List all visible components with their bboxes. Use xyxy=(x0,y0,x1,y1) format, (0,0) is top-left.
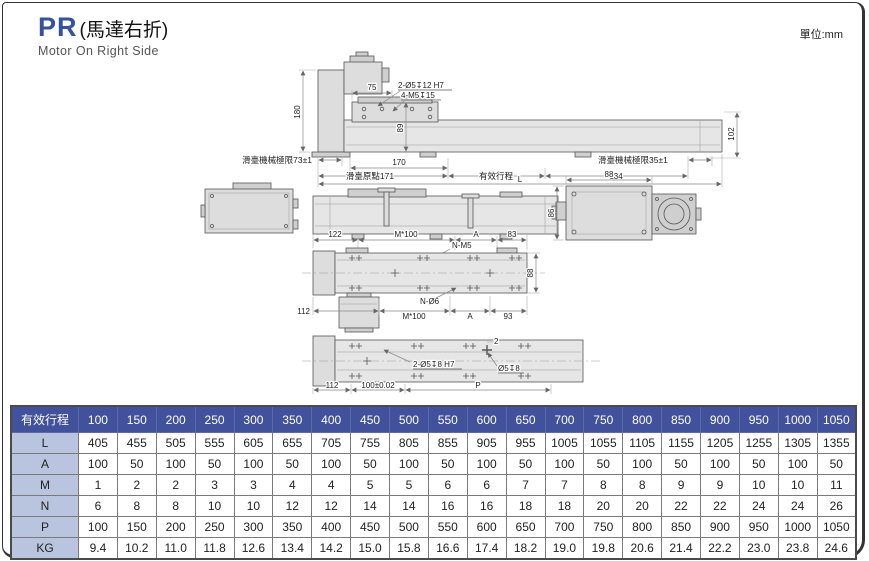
value-cell: 855 xyxy=(428,433,467,454)
value-cell: 800 xyxy=(623,517,662,538)
value-cell: 6 xyxy=(428,475,467,496)
value-cell: 50 xyxy=(506,454,545,475)
value-cell: 18 xyxy=(545,496,584,517)
value-cell: 5 xyxy=(390,475,429,496)
stroke-table: 有效行程 10015020025030035040045050055060065… xyxy=(10,405,857,560)
value-cell: 7 xyxy=(506,475,545,496)
dim-m100-top: M*100 xyxy=(394,230,418,239)
value-cell: 21.4 xyxy=(662,538,701,560)
value-cell: 16.6 xyxy=(428,538,467,560)
value-cell: 22 xyxy=(662,496,701,517)
label-n-o6: N-Ø6 xyxy=(420,297,440,306)
value-cell: 955 xyxy=(506,433,545,454)
value-cell: 550 xyxy=(428,517,467,538)
value-cell: 4 xyxy=(273,475,312,496)
value-cell: 11.0 xyxy=(156,538,195,560)
value-cell: 6 xyxy=(467,475,506,496)
value-cell: 7 xyxy=(545,475,584,496)
dim-a-bot: A xyxy=(467,312,473,321)
bottom-view: 2 2-Ø5↧8 H7 Ø5↧8 112 100±0.02 P xyxy=(302,336,600,394)
value-cell: 50 xyxy=(117,454,156,475)
value-cell: 500 xyxy=(390,517,429,538)
value-cell: 13.4 xyxy=(273,538,312,560)
value-cell: 5 xyxy=(351,475,390,496)
value-cell: 50 xyxy=(428,454,467,475)
stroke-header-cell: 1050 xyxy=(817,406,856,433)
value-cell: 100 xyxy=(79,517,118,538)
row-label-cell: L xyxy=(11,433,79,454)
table-row: N6881010121214141616181820202222242426 xyxy=(11,496,856,517)
stroke-header-cell: 250 xyxy=(195,406,234,433)
table-row: M12233445566778899101011 xyxy=(11,475,856,496)
value-cell: 22.2 xyxy=(701,538,740,560)
value-cell: 3 xyxy=(234,475,273,496)
value-cell: 605 xyxy=(234,433,273,454)
value-cell: 2 xyxy=(117,475,156,496)
value-cell: 4 xyxy=(312,475,351,496)
value-cell: 705 xyxy=(312,433,351,454)
value-cell: 2 xyxy=(156,475,195,496)
value-cell: 650 xyxy=(506,517,545,538)
value-cell: 24.6 xyxy=(817,538,856,560)
value-cell: 805 xyxy=(390,433,429,454)
dim-plan-88: 88 xyxy=(526,268,535,277)
stroke-header-cell: 500 xyxy=(390,406,429,433)
value-cell: 1005 xyxy=(545,433,584,454)
value-cell: 100 xyxy=(79,454,118,475)
value-cell: 250 xyxy=(195,517,234,538)
plan-view: 122 M*100 A 83 N-M5 xyxy=(297,230,545,332)
stroke-header-cell: 400 xyxy=(312,406,351,433)
value-cell: 1155 xyxy=(662,433,701,454)
value-cell: 3 xyxy=(195,475,234,496)
value-cell: 850 xyxy=(662,517,701,538)
value-cell: 1355 xyxy=(817,433,856,454)
value-cell: 19.0 xyxy=(545,538,584,560)
dim-a-top: A xyxy=(473,230,479,239)
dim-end-86: 86 xyxy=(547,208,556,217)
value-cell: 24 xyxy=(778,496,817,517)
stroke-header-cell: 800 xyxy=(623,406,662,433)
series-code: PR xyxy=(38,12,78,42)
dim-83: 83 xyxy=(508,230,517,239)
technical-drawings: 180 75 2-Ø5↧12 H7 4-M5↧15 89 102 滑臺機械極限 xyxy=(0,50,869,405)
value-cell: 9 xyxy=(662,475,701,496)
stroke-header-cell: 950 xyxy=(739,406,778,433)
stroke-header-cell: 750 xyxy=(584,406,623,433)
value-cell: 50 xyxy=(351,454,390,475)
value-cell: 50 xyxy=(273,454,312,475)
value-cell: 200 xyxy=(156,517,195,538)
stroke-header-cell: 550 xyxy=(428,406,467,433)
value-cell: 400 xyxy=(312,517,351,538)
value-cell: 700 xyxy=(545,517,584,538)
dim-112-plan: 112 xyxy=(297,307,310,316)
value-cell: 10 xyxy=(778,475,817,496)
value-cell: 1105 xyxy=(623,433,662,454)
value-cell: 555 xyxy=(195,433,234,454)
value-cell: 100 xyxy=(623,454,662,475)
value-cell: 1055 xyxy=(584,433,623,454)
unit-label: 單位:mm xyxy=(800,26,843,42)
value-cell: 150 xyxy=(117,517,156,538)
value-cell: 26 xyxy=(817,496,856,517)
value-cell: 18 xyxy=(506,496,545,517)
value-cell: 405 xyxy=(79,433,118,454)
value-cell: 17.4 xyxy=(467,538,506,560)
value-cell: 10 xyxy=(739,475,778,496)
value-cell: 18.2 xyxy=(506,538,545,560)
value-cell: 1205 xyxy=(701,433,740,454)
motor-top-view xyxy=(201,183,298,233)
value-cell: 100 xyxy=(156,454,195,475)
value-cell: 8 xyxy=(156,496,195,517)
value-cell: 450 xyxy=(351,517,390,538)
label-n-m5: N-M5 xyxy=(452,241,472,250)
value-cell: 8 xyxy=(623,475,662,496)
dim-m100-bot: M*100 xyxy=(402,312,426,321)
dim-122: 122 xyxy=(328,230,342,239)
dim-100-tol: 100±0.02 xyxy=(361,381,395,390)
dim-89: 89 xyxy=(396,123,405,132)
row-label-cell: P xyxy=(11,517,79,538)
stroke-header-cell: 600 xyxy=(467,406,506,433)
value-cell: 100 xyxy=(234,454,273,475)
value-cell: 100 xyxy=(545,454,584,475)
value-cell: 14 xyxy=(390,496,429,517)
value-cell: 655 xyxy=(273,433,312,454)
label-o5-8: Ø5↧8 xyxy=(498,364,520,373)
dim-end-88: 88 xyxy=(605,170,614,179)
stroke-header-cell: 100 xyxy=(79,406,118,433)
dim-93: 93 xyxy=(504,312,513,321)
value-cell: 455 xyxy=(117,433,156,454)
value-cell: 300 xyxy=(234,517,273,538)
value-cell: 505 xyxy=(156,433,195,454)
value-cell: 16 xyxy=(428,496,467,517)
value-cell: 100 xyxy=(778,454,817,475)
value-cell: 50 xyxy=(662,454,701,475)
page-title-cn: (馬達右折) xyxy=(80,20,169,41)
catalog-page: PR(馬達右折) Motor On Right Side 單位:mm xyxy=(0,0,869,561)
value-cell: 11.8 xyxy=(195,538,234,560)
label-mech-limit-right: 滑臺機械極限35±1 xyxy=(598,155,668,165)
side-elevation-view xyxy=(313,188,558,239)
value-cell: 15.0 xyxy=(351,538,390,560)
value-cell: 20 xyxy=(584,496,623,517)
value-cell: 12 xyxy=(312,496,351,517)
value-cell: 600 xyxy=(467,517,506,538)
label-origin-171: 滑臺原點171 xyxy=(346,171,394,181)
stroke-table-body: L405455505555605655705755805855905955100… xyxy=(11,433,856,560)
stroke-header-cell: 350 xyxy=(273,406,312,433)
label-holes-tapped: 4-M5↧15 xyxy=(401,91,435,100)
dim-2: 2 xyxy=(494,337,499,346)
value-cell: 50 xyxy=(584,454,623,475)
value-cell: 755 xyxy=(351,433,390,454)
table-row: KG9.410.211.011.812.613.414.215.015.816.… xyxy=(11,538,856,560)
value-cell: 900 xyxy=(701,517,740,538)
value-cell: 15.8 xyxy=(390,538,429,560)
value-cell: 10 xyxy=(195,496,234,517)
value-cell: 100 xyxy=(701,454,740,475)
value-cell: 1305 xyxy=(778,433,817,454)
row-label-cell: M xyxy=(11,475,79,496)
dim-170: 170 xyxy=(392,158,406,167)
dim-102: 102 xyxy=(727,127,736,141)
value-cell: 100 xyxy=(467,454,506,475)
value-cell: 50 xyxy=(817,454,856,475)
value-cell: 23.0 xyxy=(739,538,778,560)
value-cell: 905 xyxy=(467,433,506,454)
end-view: 88 86 xyxy=(547,170,701,240)
stroke-header-cell: 450 xyxy=(351,406,390,433)
title-row: PR(馬達右折) xyxy=(38,12,168,43)
row-label-cell: A xyxy=(11,454,79,475)
row-label-cell: N xyxy=(11,496,79,517)
value-cell: 14.2 xyxy=(312,538,351,560)
label-mech-limit-left: 滑臺機械極限73±1 xyxy=(242,155,312,165)
value-cell: 1 xyxy=(79,475,118,496)
value-cell: 750 xyxy=(584,517,623,538)
row-label-cell: KG xyxy=(11,538,79,560)
dim-L: L xyxy=(518,175,523,184)
dim-180: 180 xyxy=(293,105,302,119)
value-cell: 20 xyxy=(623,496,662,517)
stroke-header-cell: 850 xyxy=(662,406,701,433)
dim-112-bottom: 112 xyxy=(326,381,339,390)
stroke-header-cell: 700 xyxy=(545,406,584,433)
dim-75: 75 xyxy=(368,83,377,92)
value-cell: 50 xyxy=(195,454,234,475)
value-cell: 1255 xyxy=(739,433,778,454)
value-cell: 16 xyxy=(467,496,506,517)
value-cell: 8 xyxy=(117,496,156,517)
table-header-row: 有效行程 10015020025030035040045050055060065… xyxy=(11,406,856,433)
label-2-o5-8-h7: 2-Ø5↧8 H7 xyxy=(413,360,455,369)
value-cell: 50 xyxy=(739,454,778,475)
value-cell: 1050 xyxy=(817,517,856,538)
table-row: P100150200250300350400450500550600650700… xyxy=(11,517,856,538)
top-side-view: 180 75 2-Ø5↧12 H7 4-M5↧15 89 102 滑臺機械極限 xyxy=(242,52,741,187)
stroke-header-cell: 1000 xyxy=(778,406,817,433)
value-cell: 100 xyxy=(312,454,351,475)
label-holes-counterbore: 2-Ø5↧12 H7 xyxy=(398,81,444,90)
value-cell: 1000 xyxy=(778,517,817,538)
value-cell: 19.8 xyxy=(584,538,623,560)
value-cell: 12 xyxy=(273,496,312,517)
stroke-header-cell: 300 xyxy=(234,406,273,433)
value-cell: 9.4 xyxy=(79,538,118,560)
table-row: L405455505555605655705755805855905955100… xyxy=(11,433,856,454)
value-cell: 22 xyxy=(701,496,740,517)
label-effective-stroke: 有效行程 xyxy=(479,171,514,181)
stroke-table-wrap: 有效行程 10015020025030035040045050055060065… xyxy=(10,405,857,560)
value-cell: 9 xyxy=(701,475,740,496)
value-cell: 20.6 xyxy=(623,538,662,560)
value-cell: 350 xyxy=(273,517,312,538)
table-row: A100501005010050100501005010050100501005… xyxy=(11,454,856,475)
value-cell: 950 xyxy=(739,517,778,538)
value-cell: 14 xyxy=(351,496,390,517)
stroke-header-cell: 650 xyxy=(506,406,545,433)
stroke-header-label: 有效行程 xyxy=(11,406,79,433)
stroke-header-cell: 200 xyxy=(156,406,195,433)
value-cell: 8 xyxy=(584,475,623,496)
dim-P: P xyxy=(475,381,480,390)
stroke-header-cell: 150 xyxy=(117,406,156,433)
value-cell: 12.6 xyxy=(234,538,273,560)
value-cell: 23.8 xyxy=(778,538,817,560)
value-cell: 10 xyxy=(234,496,273,517)
value-cell: 6 xyxy=(79,496,118,517)
value-cell: 10.2 xyxy=(117,538,156,560)
stroke-header-cell: 900 xyxy=(701,406,740,433)
value-cell: 11 xyxy=(817,475,856,496)
value-cell: 100 xyxy=(390,454,429,475)
value-cell: 24 xyxy=(739,496,778,517)
